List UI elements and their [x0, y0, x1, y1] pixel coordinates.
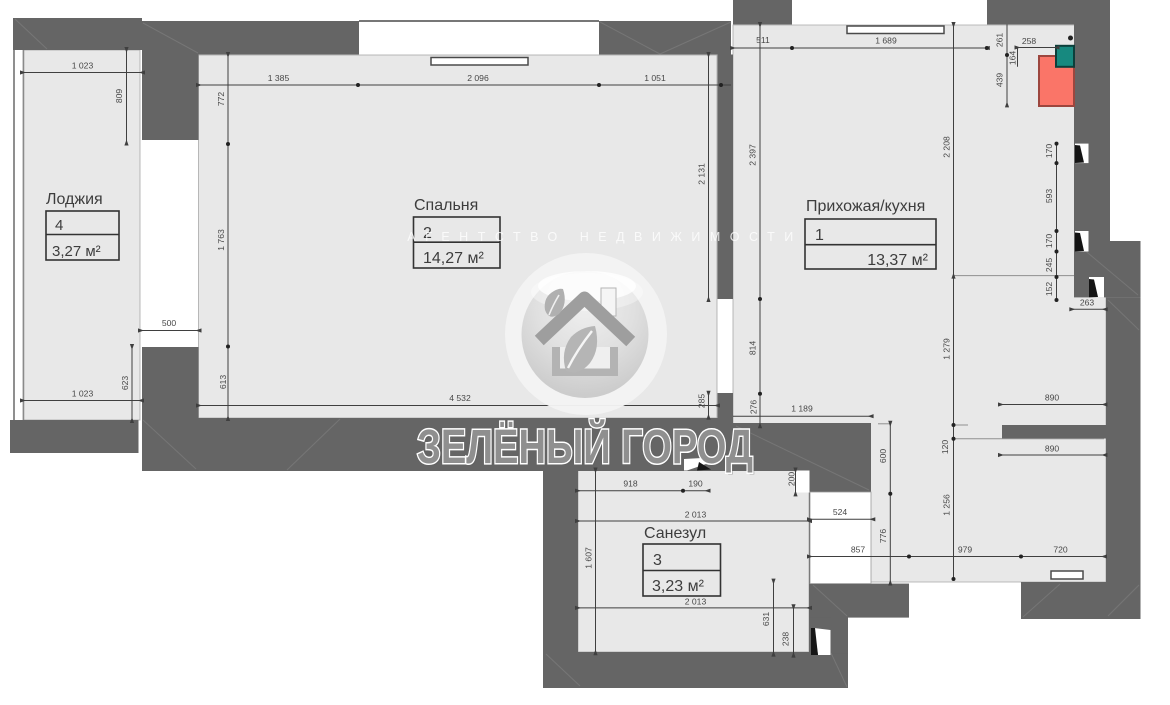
svg-text:776: 776	[878, 529, 888, 544]
svg-text:809: 809	[114, 89, 124, 104]
svg-text:3,23 м²: 3,23 м²	[652, 578, 705, 595]
svg-text:285: 285	[697, 394, 707, 409]
svg-text:814: 814	[748, 341, 758, 356]
svg-text:1: 1	[815, 227, 824, 244]
svg-text:1 023: 1 023	[72, 389, 94, 399]
svg-text:613: 613	[218, 375, 228, 390]
svg-text:1 763: 1 763	[216, 229, 226, 251]
svg-text:4 532: 4 532	[449, 393, 471, 403]
svg-text:258: 258	[1022, 36, 1037, 46]
svg-text:3,27 м²: 3,27 м²	[52, 243, 101, 260]
svg-text:1 256: 1 256	[942, 494, 952, 516]
svg-text:2 208: 2 208	[942, 136, 952, 158]
svg-text:857: 857	[851, 545, 866, 555]
svg-text:2 397: 2 397	[748, 144, 758, 166]
svg-text:200: 200	[787, 472, 797, 487]
svg-text:1 051: 1 051	[644, 73, 666, 83]
svg-text:720: 720	[1053, 545, 1068, 555]
svg-text:524: 524	[833, 507, 848, 517]
svg-text:АГЕНТСТВО НЕДВИЖИМОСТИ: АГЕНТСТВО НЕДВИЖИМОСТИ	[407, 230, 803, 244]
svg-text:Лоджия: Лоджия	[46, 191, 103, 208]
svg-text:2 131: 2 131	[697, 163, 707, 185]
svg-text:979: 979	[958, 545, 973, 555]
svg-text:Санезул: Санезул	[644, 525, 706, 542]
svg-text:1 279: 1 279	[942, 338, 952, 360]
svg-text:3: 3	[653, 552, 662, 569]
svg-text:170: 170	[1044, 144, 1054, 159]
svg-text:511: 511	[756, 35, 770, 45]
svg-text:2 013: 2 013	[685, 597, 707, 607]
svg-text:918: 918	[623, 479, 638, 489]
svg-text:120: 120	[940, 440, 950, 455]
svg-text:170: 170	[1044, 234, 1054, 249]
svg-text:14,27 м²: 14,27 м²	[423, 250, 484, 267]
svg-text:Прихожая/кухня: Прихожая/кухня	[806, 198, 925, 215]
svg-text:164: 164	[1008, 51, 1018, 66]
svg-text:261: 261	[995, 33, 1005, 48]
svg-text:190: 190	[688, 479, 703, 489]
svg-text:1 689: 1 689	[875, 36, 897, 46]
svg-text:1 607: 1 607	[584, 547, 594, 569]
svg-text:623: 623	[120, 376, 130, 391]
svg-text:238: 238	[781, 632, 791, 647]
svg-text:772: 772	[216, 92, 226, 107]
svg-text:4: 4	[55, 217, 63, 234]
svg-text:500: 500	[162, 318, 177, 328]
svg-text:13,37 м²: 13,37 м²	[867, 252, 928, 269]
svg-text:Спальня: Спальня	[414, 197, 478, 214]
svg-text:1 385: 1 385	[268, 73, 290, 83]
svg-text:593: 593	[1044, 189, 1054, 204]
svg-text:276: 276	[749, 400, 759, 415]
svg-text:890: 890	[1045, 444, 1060, 454]
svg-text:1 023: 1 023	[72, 61, 94, 71]
svg-text:439: 439	[995, 73, 1005, 88]
svg-text:631: 631	[761, 612, 771, 627]
svg-text:152: 152	[1044, 282, 1054, 297]
svg-text:ЗЕЛЁНЫЙ ГОРОД: ЗЕЛЁНЫЙ ГОРОД	[417, 419, 753, 474]
svg-text:1 189: 1 189	[791, 404, 813, 414]
svg-text:2 013: 2 013	[685, 510, 707, 520]
svg-text:245: 245	[1044, 258, 1054, 273]
svg-text:2 096: 2 096	[467, 73, 489, 83]
svg-text:600: 600	[878, 449, 888, 464]
svg-text:890: 890	[1045, 393, 1060, 403]
svg-text:263: 263	[1080, 298, 1095, 308]
